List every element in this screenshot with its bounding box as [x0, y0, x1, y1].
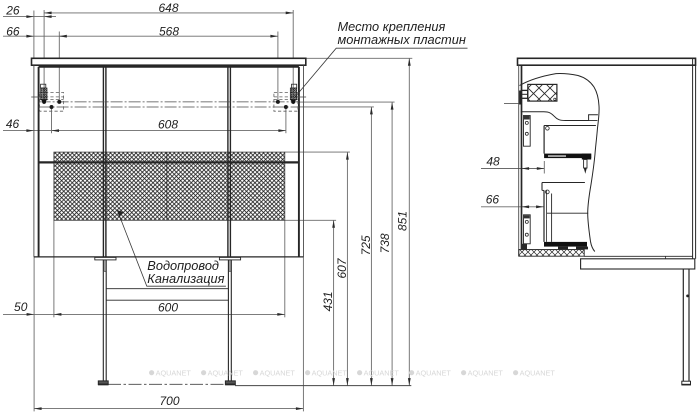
- svg-text:431: 431: [321, 291, 335, 311]
- svg-text:AQUANET: AQUANET: [364, 369, 400, 378]
- svg-text:AQUANET: AQUANET: [156, 369, 192, 378]
- svg-text:Канализация: Канализация: [147, 271, 224, 286]
- svg-text:50: 50: [14, 300, 28, 314]
- svg-text:48: 48: [486, 155, 500, 169]
- svg-text:607: 607: [335, 257, 349, 278]
- svg-text:600: 600: [158, 300, 178, 314]
- svg-text:66: 66: [486, 192, 500, 206]
- svg-text:46: 46: [6, 117, 20, 131]
- svg-text:AQUANET: AQUANET: [260, 369, 296, 378]
- svg-text:AQUANET: AQUANET: [416, 369, 452, 378]
- svg-text:AQUANET: AQUANET: [468, 369, 504, 378]
- svg-text:AQUANET: AQUANET: [312, 369, 348, 378]
- svg-text:AQUANET: AQUANET: [208, 369, 244, 378]
- svg-text:648: 648: [158, 1, 178, 15]
- svg-text:26: 26: [5, 3, 20, 17]
- svg-text:700: 700: [159, 394, 179, 408]
- svg-text:AQUANET: AQUANET: [520, 369, 556, 378]
- svg-text:568: 568: [159, 24, 179, 38]
- svg-text:725: 725: [359, 235, 373, 255]
- svg-text:851: 851: [396, 211, 410, 231]
- svg-text:608: 608: [158, 117, 178, 131]
- svg-text:738: 738: [378, 233, 392, 253]
- svg-text:монтажных пластин: монтажных пластин: [338, 32, 466, 47]
- svg-text:66: 66: [6, 24, 20, 38]
